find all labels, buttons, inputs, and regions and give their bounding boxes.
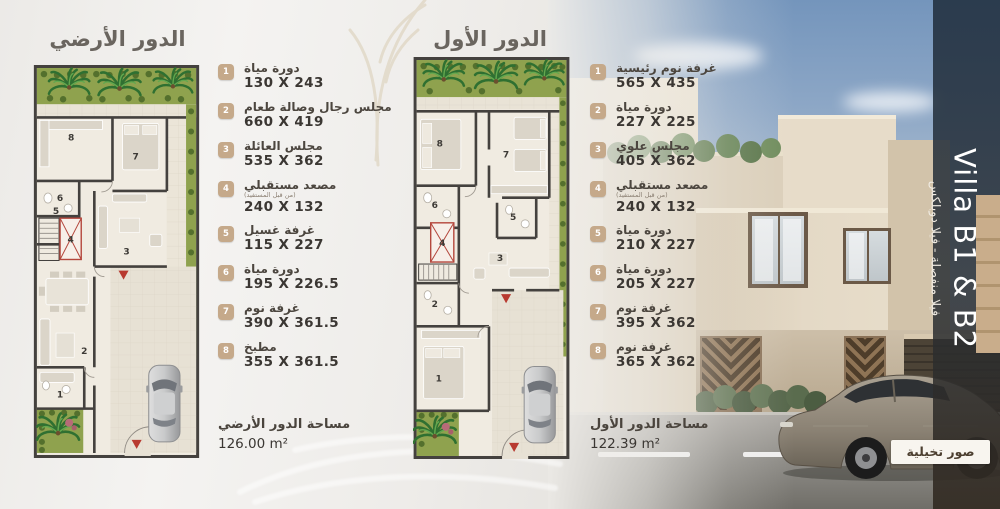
room-dimensions: 660 X 419 [244, 114, 392, 130]
legend-item: 3 مجلس علوي 405 X 362 [590, 139, 768, 170]
area-value: 126.00 m² [218, 436, 418, 452]
room-name: مصعد مستقبلي [244, 178, 336, 192]
room-dimensions: 205 X 227 [616, 276, 696, 292]
room-number-badge: 2 [590, 103, 606, 119]
room-number-badge: 6 [590, 265, 606, 281]
room-number: 4 [68, 235, 74, 245]
room-number: 2 [432, 300, 438, 310]
room-name: مجلس العائلة [244, 139, 324, 153]
room-name: دورة مياة [616, 100, 696, 114]
legend-item: 8 غرفة نوم 365 X 362 [590, 340, 768, 371]
ground-floor-plan: 8 7 6 5 4 3 2 1 [33, 65, 200, 458]
legend-item: 6 دورة مياة 205 X 227 [590, 262, 768, 293]
room-dimensions: 390 X 361.5 [244, 315, 339, 331]
room-number: 3 [123, 247, 129, 257]
room-number: 7 [503, 151, 509, 161]
room-number: 2 [81, 347, 87, 357]
villa-subtitle: فيلا منفصلة - فيلا دوبلكس [929, 79, 944, 419]
room-dimensions: 405 X 362 [616, 153, 696, 169]
room-number-badge: 7 [590, 304, 606, 320]
room-number: 5 [53, 207, 59, 217]
legend-item: 4 مصعد مستقبلي (من قبل المستفيد) 240 X 1… [218, 178, 396, 215]
room-number: 6 [432, 201, 438, 211]
legend-item: 5 دورة مياة 210 X 227 [590, 223, 768, 254]
room-number-badge: 7 [218, 304, 234, 320]
first-floor-legend: 1 غرفة نوم رئيسية 565 X 435 2 دورة مياة … [590, 61, 768, 379]
room-dimensions: 240 X 132 [616, 199, 708, 215]
room-number: 5 [510, 213, 516, 223]
villa-name-label: Villa B1 & B2 فيلا منفصلة - فيلا دوبلكس [929, 79, 982, 419]
room-name: غرفة نوم [244, 301, 339, 315]
room-dimensions: 395 X 362 [616, 315, 696, 331]
room-number: 1 [436, 375, 442, 385]
ground-floor-legend: 1 دورة مياة 130 X 243 2 مجلس رجال وصالة … [218, 61, 396, 379]
brochure-page: 8 7 6 5 4 3 2 1 [0, 0, 1000, 509]
room-number-badge: 4 [590, 181, 606, 197]
room-name: مصعد مستقبلي [616, 178, 708, 192]
room-dimensions: 365 X 362 [616, 354, 696, 370]
room-number-badge: 8 [218, 343, 234, 359]
room-number: 1 [57, 391, 63, 401]
room-dimensions: 535 X 362 [244, 153, 324, 169]
room-number-badge: 4 [218, 181, 234, 197]
room-number: 6 [57, 194, 63, 204]
legend-item: 8 مطبخ 355 X 361.5 [218, 340, 396, 371]
room-number-badge: 6 [218, 265, 234, 281]
room-name: دورة مياة [244, 262, 339, 276]
first-floor-plan: 8 7 6 5 4 3 2 1 [413, 57, 570, 459]
ground-floor-title: الدور الأرضي [30, 27, 205, 51]
disclaimer-badge: صور تخيلية [891, 440, 990, 464]
legend-item: 1 دورة مياة 130 X 243 [218, 61, 396, 92]
room-name: مجلس علوي [616, 139, 696, 153]
room-name: مجلس رجال وصالة طعام [244, 100, 392, 114]
room-number-badge: 5 [218, 226, 234, 242]
villa-name: Villa B1 & B2 [948, 79, 982, 419]
room-number-badge: 2 [218, 103, 234, 119]
room-number: 8 [437, 139, 443, 149]
legend-item: 3 مجلس العائلة 535 X 362 [218, 139, 396, 170]
room-name: دورة مياة [616, 262, 696, 276]
room-dimensions: 227 X 225 [616, 114, 696, 130]
legend-item: 2 دورة مياة 227 X 225 [590, 100, 768, 131]
room-number: 8 [68, 134, 74, 144]
room-number: 4 [439, 239, 445, 249]
ground-floor-area: مساحة الدور الأرضي 126.00 m² [218, 417, 418, 452]
room-number-badge: 8 [590, 343, 606, 359]
room-dimensions: 565 X 435 [616, 75, 717, 91]
first-floor-area: مساحة الدور الأول 122.39 m² [590, 417, 790, 452]
window [843, 228, 891, 284]
room-dimensions: 240 X 132 [244, 199, 336, 215]
legend-item: 2 مجلس رجال وصالة طعام 660 X 419 [218, 100, 396, 131]
area-label: مساحة الدور الأرضي [218, 417, 418, 432]
room-note: (من قبل المستفيد) [244, 192, 336, 199]
room-number-badge: 3 [218, 142, 234, 158]
room-name: غرفة نوم رئيسية [616, 61, 717, 75]
room-name: غرفة نوم [616, 301, 696, 315]
legend-item: 7 غرفة نوم 395 X 362 [590, 301, 768, 332]
room-name: غرفة غسيل [244, 223, 324, 237]
room-name: دورة مياة [244, 61, 324, 75]
room-note: (من قبل المستفيد) [616, 192, 708, 199]
room-number: 3 [497, 254, 503, 264]
room-name: غرفة نوم [616, 340, 696, 354]
area-value: 122.39 m² [590, 436, 790, 452]
legend-item: 5 غرفة غسيل 115 X 227 [218, 223, 396, 254]
room-dimensions: 115 X 227 [244, 237, 324, 253]
room-number-badge: 1 [590, 64, 606, 80]
room-dimensions: 195 X 226.5 [244, 276, 339, 292]
room-dimensions: 355 X 361.5 [244, 354, 339, 370]
legend-item: 6 دورة مياة 195 X 226.5 [218, 262, 396, 293]
room-number-badge: 1 [218, 64, 234, 80]
area-label: مساحة الدور الأول [590, 417, 790, 432]
room-name: دورة مياة [616, 223, 696, 237]
legend-item: 4 مصعد مستقبلي (من قبل المستفيد) 240 X 1… [590, 178, 768, 215]
legend-item: 1 غرفة نوم رئيسية 565 X 435 [590, 61, 768, 92]
room-dimensions: 210 X 227 [616, 237, 696, 253]
legend-item: 7 غرفة نوم 390 X 361.5 [218, 301, 396, 332]
room-number-badge: 3 [590, 142, 606, 158]
room-name: مطبخ [244, 340, 339, 354]
room-dimensions: 130 X 243 [244, 75, 324, 91]
cloud [843, 92, 938, 112]
room-number-badge: 5 [590, 226, 606, 242]
room-number: 7 [132, 153, 138, 163]
